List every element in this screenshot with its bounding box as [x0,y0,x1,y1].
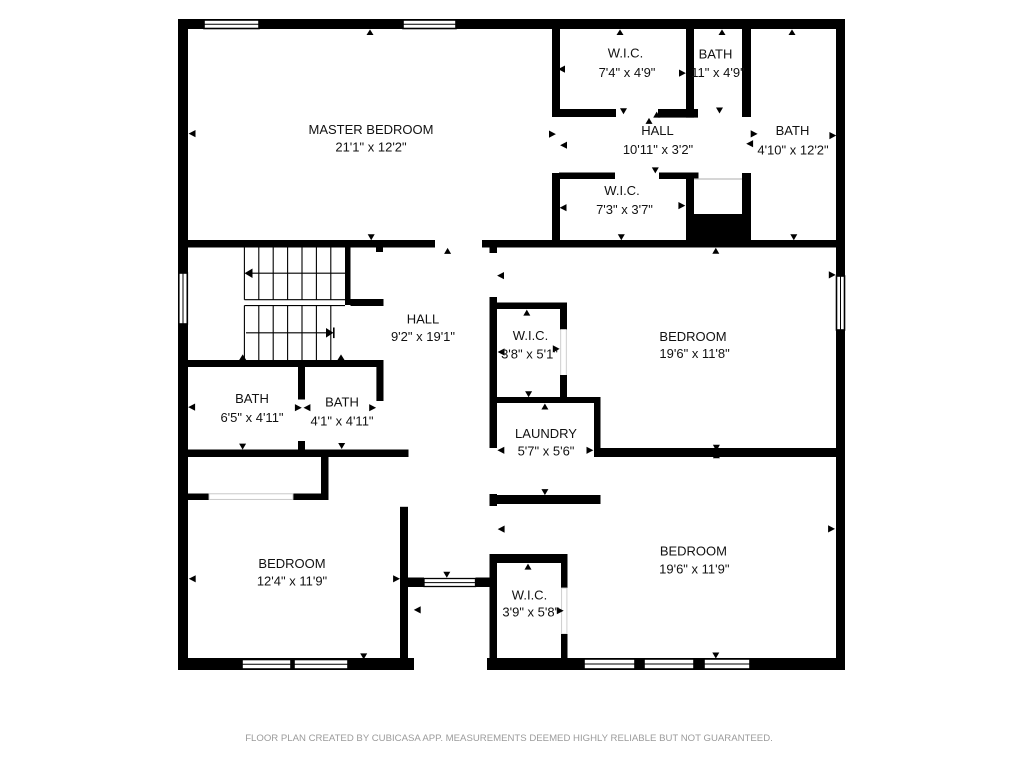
svg-text:BATH: BATH [699,47,733,62]
svg-text:W.I.C.: W.I.C. [513,328,548,343]
svg-text:W.I.C.: W.I.C. [608,46,643,61]
svg-text:BEDROOM: BEDROOM [659,329,726,344]
svg-text:12'4" x 11'9": 12'4" x 11'9" [257,574,328,589]
svg-text:BEDROOM: BEDROOM [660,543,727,558]
svg-text:10'11" x 3'2": 10'11" x 3'2" [623,142,694,157]
svg-text:FLOOR PLAN CREATED BY CUBICASA: FLOOR PLAN CREATED BY CUBICASA APP. MEAS… [245,733,773,744]
svg-text:5'7" x 5'6": 5'7" x 5'6" [518,443,575,458]
svg-text:3'9" x 5'8": 3'9" x 5'8" [502,605,559,620]
svg-text:19'6" x 11'8": 19'6" x 11'8" [659,346,730,361]
svg-text:LAUNDRY: LAUNDRY [515,426,577,441]
svg-text:BATH: BATH [325,395,359,410]
svg-text:MASTER BEDROOM: MASTER BEDROOM [309,122,434,137]
svg-text:21'1" x 12'2": 21'1" x 12'2" [335,140,407,155]
svg-text:BEDROOM: BEDROOM [258,556,325,571]
svg-text:3'8" x 5'1": 3'8" x 5'1" [501,347,558,362]
svg-text:19'6" x 11'9": 19'6" x 11'9" [659,562,730,577]
svg-text:9'2" x 19'1": 9'2" x 19'1" [391,329,455,344]
svg-text:6'5" x 4'11": 6'5" x 4'11" [220,410,283,425]
svg-text:HALL: HALL [641,123,674,138]
svg-text:7'4" x 4'9": 7'4" x 4'9" [599,65,656,80]
svg-text:HALL: HALL [407,312,440,327]
svg-text:W.I.C.: W.I.C. [604,183,639,198]
svg-text:BATH: BATH [776,123,810,138]
svg-text:4'1" x 4'11": 4'1" x 4'11" [310,413,373,428]
svg-text:7'3" x 3'7": 7'3" x 3'7" [596,202,653,217]
svg-text:BATH: BATH [235,391,269,406]
svg-text:W.I.C.: W.I.C. [512,588,547,603]
svg-text:11" x 4'9": 11" x 4'9" [691,65,745,80]
svg-text:4'10" x 12'2": 4'10" x 12'2" [757,143,829,158]
